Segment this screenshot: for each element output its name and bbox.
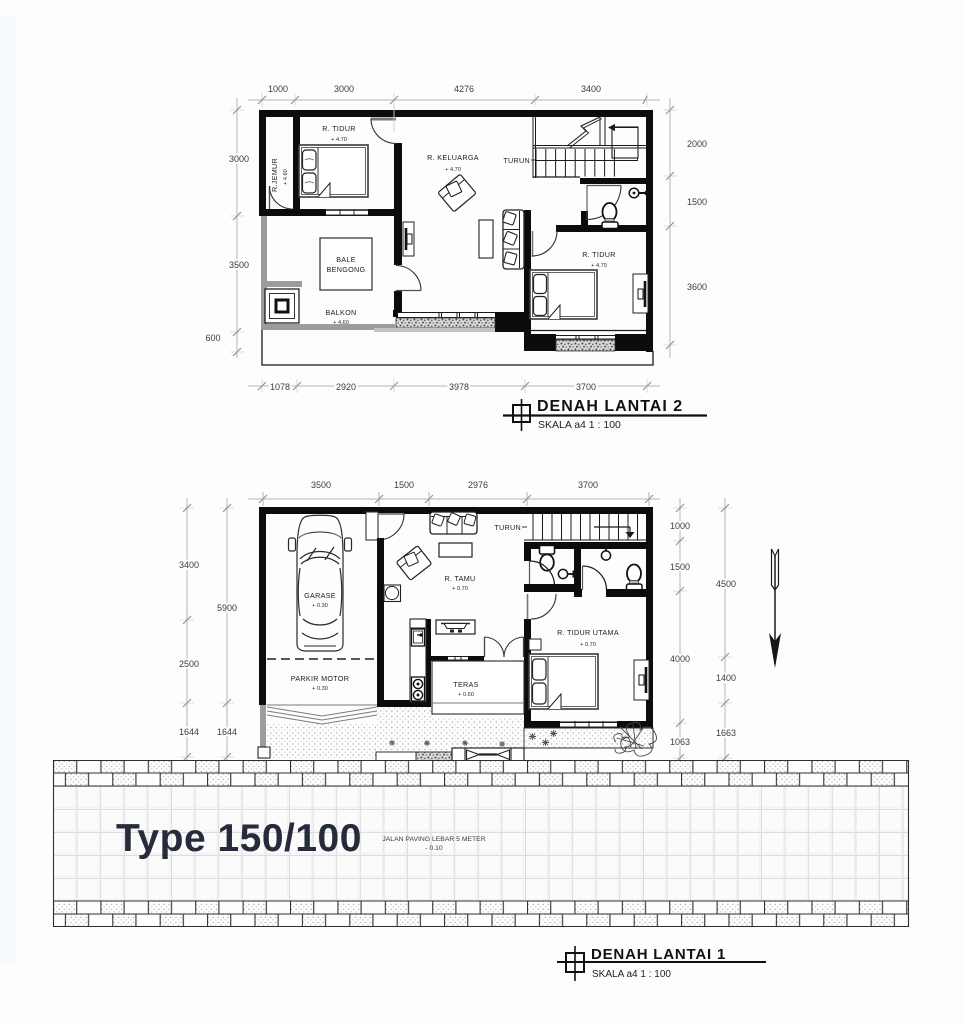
svg-text:1000: 1000 bbox=[670, 521, 690, 531]
svg-text:BALKON: BALKON bbox=[326, 308, 357, 317]
svg-text:3000: 3000 bbox=[334, 84, 354, 94]
svg-text:+ 4.70: + 4.70 bbox=[445, 167, 461, 173]
svg-text:TURUN: TURUN bbox=[503, 156, 530, 165]
svg-text:+ 4.70: + 4.70 bbox=[591, 263, 607, 269]
svg-text:R. KELUARGA: R. KELUARGA bbox=[427, 153, 479, 162]
svg-text:BALE: BALE bbox=[336, 255, 356, 264]
svg-text:1063: 1063 bbox=[670, 737, 690, 747]
svg-text:+ 0.70: + 0.70 bbox=[452, 586, 468, 592]
svg-text:TERAS: TERAS bbox=[453, 680, 478, 689]
svg-text:600: 600 bbox=[205, 333, 220, 343]
svg-text:SKALA a4 1 : 100: SKALA a4 1 : 100 bbox=[538, 419, 621, 431]
svg-text:1400: 1400 bbox=[716, 673, 736, 683]
svg-text:3700: 3700 bbox=[576, 382, 596, 392]
svg-text:+ 4.60: + 4.60 bbox=[333, 320, 349, 326]
svg-text:3500: 3500 bbox=[229, 260, 249, 270]
svg-text:R. TIDUR: R. TIDUR bbox=[322, 124, 355, 133]
svg-text:3000: 3000 bbox=[229, 154, 249, 164]
svg-text:1078: 1078 bbox=[270, 382, 290, 392]
svg-text:2000: 2000 bbox=[687, 139, 707, 149]
svg-text:1644: 1644 bbox=[179, 727, 199, 737]
svg-text:1644: 1644 bbox=[217, 727, 237, 737]
svg-text:4500: 4500 bbox=[716, 579, 736, 589]
svg-text:JALAN PAVING LEBAR 5 METER: JALAN PAVING LEBAR 5 METER bbox=[382, 836, 485, 843]
svg-text:3400: 3400 bbox=[179, 560, 199, 570]
svg-text:1663: 1663 bbox=[716, 728, 736, 738]
svg-text:3400: 3400 bbox=[581, 84, 601, 94]
svg-text:2920: 2920 bbox=[336, 382, 356, 392]
svg-text:2500: 2500 bbox=[179, 659, 199, 669]
svg-text:5900: 5900 bbox=[217, 603, 237, 613]
svg-text:+ 4.70: + 4.70 bbox=[331, 137, 347, 143]
svg-text:3500: 3500 bbox=[311, 480, 331, 490]
svg-text:1500: 1500 bbox=[394, 480, 414, 490]
svg-text:3600: 3600 bbox=[687, 282, 707, 292]
svg-text:R. TAMU: R. TAMU bbox=[445, 574, 476, 583]
svg-text:DENAH LANTAI 1: DENAH LANTAI 1 bbox=[591, 946, 726, 963]
svg-text:3700: 3700 bbox=[578, 480, 598, 490]
svg-text:R.JEMUR: R.JEMUR bbox=[270, 158, 279, 192]
svg-text:TURUN: TURUN bbox=[494, 523, 521, 532]
svg-text:BENGONG: BENGONG bbox=[327, 265, 366, 274]
svg-text:+ 0.30: + 0.30 bbox=[312, 603, 328, 609]
svg-text:4000: 4000 bbox=[670, 654, 690, 664]
svg-text:2976: 2976 bbox=[468, 480, 488, 490]
svg-text:4276: 4276 bbox=[454, 84, 474, 94]
svg-text:SKALA a4 1 : 100: SKALA a4 1 : 100 bbox=[592, 969, 671, 980]
svg-text:1000: 1000 bbox=[268, 84, 288, 94]
svg-text:+ 0.70: + 0.70 bbox=[580, 642, 596, 648]
svg-text:GARASE: GARASE bbox=[304, 591, 336, 600]
svg-text:+ 0.30: + 0.30 bbox=[312, 686, 328, 692]
svg-text:3978: 3978 bbox=[449, 382, 469, 392]
svg-text:Type 150/100: Type 150/100 bbox=[116, 817, 362, 860]
svg-text:R. TIDUR UTAMA: R. TIDUR UTAMA bbox=[557, 628, 619, 637]
svg-text:+ 0.60: + 0.60 bbox=[458, 692, 474, 698]
svg-text:- 0.10: - 0.10 bbox=[425, 845, 443, 852]
svg-text:DENAH LANTAI 2: DENAH LANTAI 2 bbox=[537, 398, 683, 415]
svg-text:1500: 1500 bbox=[687, 197, 707, 207]
svg-text:+ 4.60: + 4.60 bbox=[283, 169, 289, 185]
svg-text:R. TIDUR: R. TIDUR bbox=[582, 250, 615, 259]
svg-text:PARKIR MOTOR: PARKIR MOTOR bbox=[291, 674, 349, 683]
svg-text:1500: 1500 bbox=[670, 562, 690, 572]
